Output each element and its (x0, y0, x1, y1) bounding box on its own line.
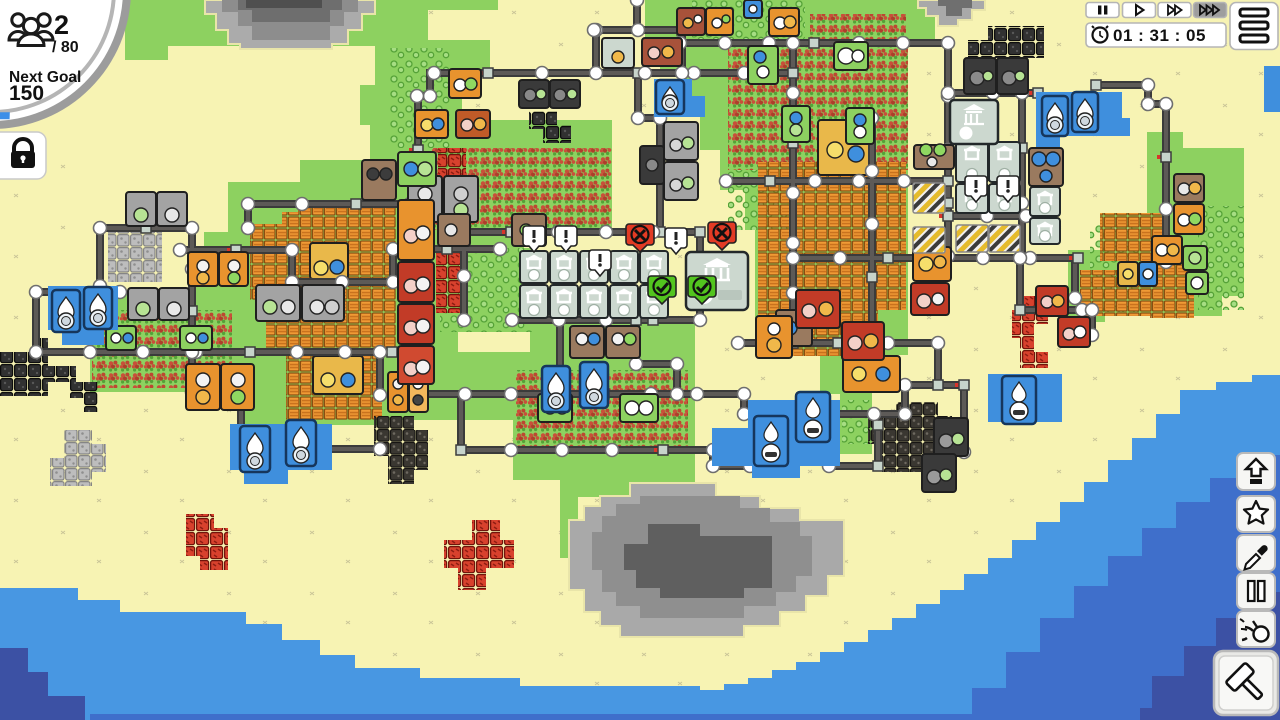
svg-text:150: 150 (9, 82, 44, 105)
svg-text:/ 80: / 80 (52, 39, 79, 56)
svg-text:2: 2 (54, 10, 69, 40)
svg-text:01 : 31 : 05: 01 : 31 : 05 (1113, 26, 1206, 45)
